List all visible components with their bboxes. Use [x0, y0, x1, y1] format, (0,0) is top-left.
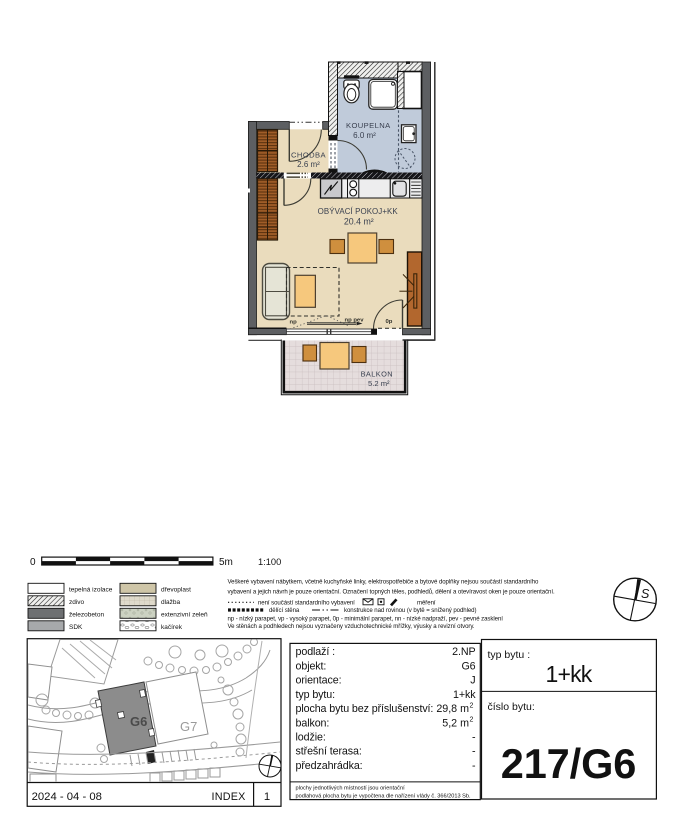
- svg-text:0p: 0p: [386, 319, 393, 325]
- svg-text:podlahová plocha bytu je vypoč: podlahová plocha bytu je vypočtena dle n…: [296, 794, 472, 800]
- svg-text:29,8 m: 29,8 m: [436, 703, 469, 715]
- svg-text:číslo bytu:: číslo bytu:: [488, 701, 535, 713]
- svg-text:-: -: [472, 732, 476, 744]
- svg-text:6.0 m²: 6.0 m²: [353, 131, 376, 140]
- svg-text:extenzivní zeleň: extenzivní zeleň: [161, 611, 208, 618]
- svg-text:tepelná izolace: tepelná izolace: [69, 586, 113, 593]
- svg-text:5,2 m: 5,2 m: [442, 717, 469, 729]
- svg-text:-: -: [472, 746, 476, 758]
- svg-text:Veškeré vybavení nábytkem, vče: Veškeré vybavení nábytkem, včetně kuchyň…: [228, 579, 540, 586]
- svg-text:orientace:: orientace:: [296, 675, 342, 687]
- svg-text:np: np: [290, 319, 298, 325]
- svg-text:dřevoplast: dřevoplast: [161, 586, 191, 593]
- svg-text:plocha bytu bez příslušenství:: plocha bytu bez příslušenství:: [296, 703, 434, 715]
- svg-text:železobeton: železobeton: [69, 611, 104, 618]
- svg-text:1+kk: 1+kk: [545, 661, 592, 687]
- svg-text:1:100: 1:100: [258, 557, 281, 567]
- svg-text:objekt:: objekt:: [296, 660, 327, 672]
- svg-text:plochy jednotlivých místností: plochy jednotlivých místností jsou orien…: [296, 786, 406, 792]
- svg-text:typ bytu:: typ bytu:: [296, 689, 336, 701]
- svg-text:vybavení a jejich návrh je pou: vybavení a jejich návrh je pouze orienta…: [228, 589, 555, 596]
- svg-text:20.4 m²: 20.4 m²: [344, 217, 374, 227]
- svg-text:np pev: np pev: [345, 317, 365, 323]
- svg-text:1+kk: 1+kk: [453, 689, 476, 701]
- svg-text:lodžie:: lodžie:: [296, 732, 326, 744]
- svg-text:BALKON: BALKON: [361, 370, 393, 379]
- svg-text:zdivo: zdivo: [69, 599, 85, 606]
- svg-text:dlažba: dlažba: [161, 599, 181, 606]
- svg-text:střešní terasa:: střešní terasa:: [296, 746, 362, 758]
- svg-text:np - nízký parapet, vp - vysok: np - nízký parapet, vp - vysoký parapet,…: [228, 616, 504, 623]
- svg-text:G6: G6: [130, 714, 147, 729]
- svg-text:předzahrádka:: předzahrádka:: [296, 760, 363, 772]
- svg-text:balkon:: balkon:: [296, 717, 330, 729]
- svg-text:dělící stěna: dělící stěna: [269, 607, 300, 614]
- svg-text:SDK: SDK: [69, 624, 83, 631]
- svg-text:typ bytu :: typ bytu :: [488, 649, 531, 661]
- svg-text:2: 2: [470, 703, 474, 710]
- svg-text:INDEX: INDEX: [212, 791, 246, 803]
- svg-text:G7: G7: [180, 719, 197, 734]
- svg-text:J: J: [470, 675, 475, 687]
- svg-text:Ve stěnách a podhledech nejsou: Ve stěnách a podhledech nejsou vyznačeny…: [228, 623, 475, 630]
- svg-text:OBÝVACÍ POKOJ+KK: OBÝVACÍ POKOJ+KK: [318, 207, 399, 216]
- svg-text:217/G6: 217/G6: [501, 740, 637, 787]
- svg-text:G6: G6: [461, 660, 475, 672]
- svg-text:5m: 5m: [219, 557, 233, 568]
- svg-text:konstrukce nad rovinou (v bytě: konstrukce nad rovinou (v bytě = snížený…: [344, 607, 476, 614]
- svg-text:podlaží :: podlaží :: [296, 646, 336, 658]
- svg-text:2024 - 04 - 08: 2024 - 04 - 08: [32, 791, 102, 803]
- svg-text:S: S: [641, 587, 650, 601]
- svg-text:2.NP: 2.NP: [452, 646, 475, 658]
- svg-text:KOUPELNA: KOUPELNA: [346, 121, 391, 130]
- svg-text:CHODBA: CHODBA: [291, 151, 326, 160]
- svg-text:0: 0: [30, 557, 36, 568]
- svg-text:5.2 m²: 5.2 m²: [368, 379, 390, 388]
- svg-text:kačírek: kačírek: [161, 624, 183, 631]
- svg-text:2.6 m²: 2.6 m²: [297, 160, 320, 169]
- svg-text:měření: měření: [417, 599, 436, 606]
- svg-text:1: 1: [264, 791, 270, 803]
- svg-text:2: 2: [470, 717, 474, 724]
- svg-text:není součástí standardního vyb: není součástí standardního vybavení: [258, 599, 355, 606]
- svg-text:-: -: [472, 760, 476, 772]
